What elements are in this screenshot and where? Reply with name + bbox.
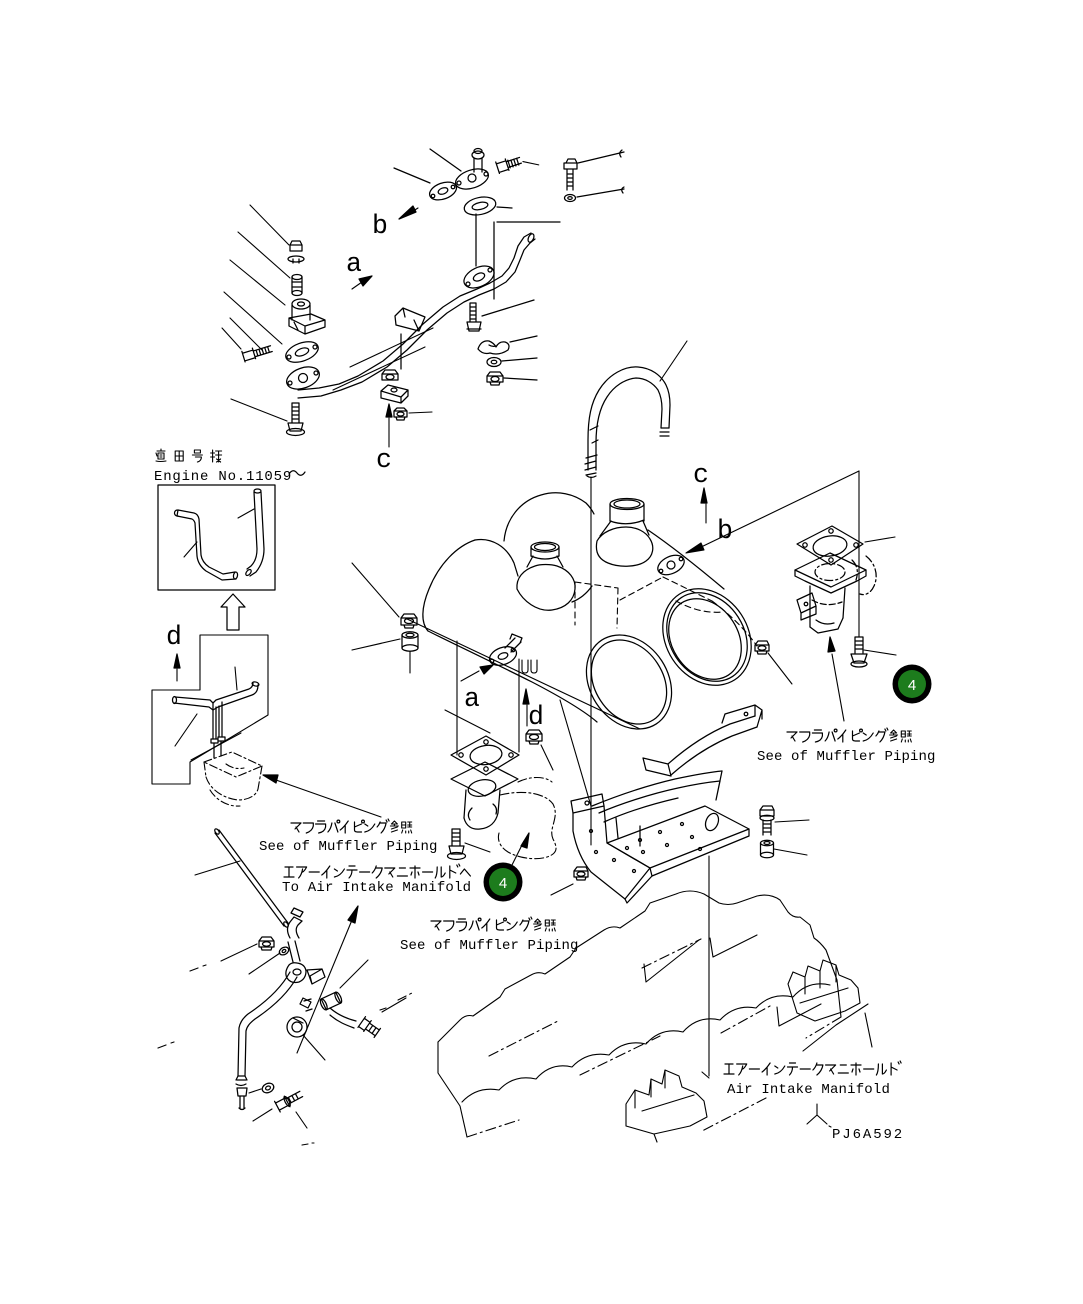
svg-text:4: 4 [908,677,916,694]
svg-text:See of Muffler Piping: See of Muffler Piping [400,938,579,954]
svg-text:a: a [464,684,480,714]
svg-text:PJ6A592: PJ6A592 [832,1127,904,1143]
svg-text:4: 4 [499,875,507,892]
svg-text:b: b [372,211,388,241]
svg-text:d: d [528,702,544,732]
svg-text:See of Muffler Piping: See of Muffler Piping [757,749,936,765]
svg-text:d: d [166,622,182,652]
svg-text:c: c [376,445,392,475]
svg-text:To Air Intake Manifold: To Air Intake Manifold [282,880,471,896]
svg-text:a: a [346,249,362,279]
svg-text:c: c [693,460,709,490]
svg-text:See of Muffler Piping: See of Muffler Piping [259,839,438,855]
svg-text:b: b [717,516,733,546]
svg-text:Air Intake Manifold: Air Intake Manifold [727,1082,890,1098]
svg-text:Engine No.11059: Engine No.11059 [154,469,292,485]
